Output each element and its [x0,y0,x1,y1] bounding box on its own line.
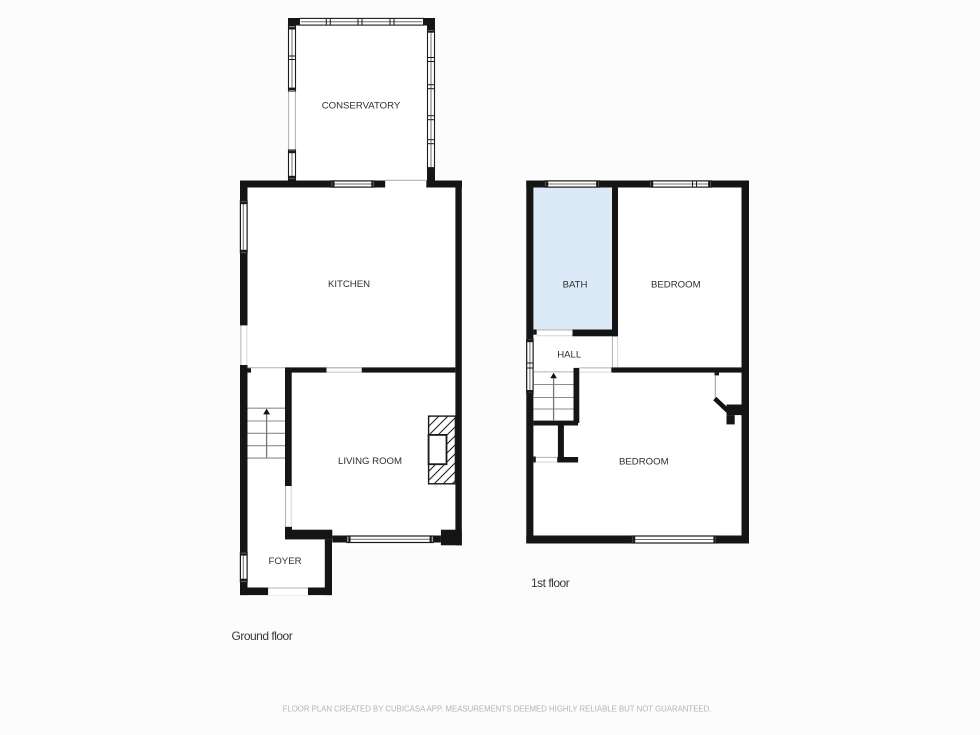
svg-text:BEDROOM: BEDROOM [651,280,701,291]
svg-text:BEDROOM: BEDROOM [619,457,669,468]
svg-text:BATH: BATH [563,280,588,291]
svg-text:LIVING ROOM: LIVING ROOM [338,456,402,467]
svg-text:KITCHEN: KITCHEN [328,279,370,290]
svg-text:HALL: HALL [557,350,582,361]
svg-text:Ground floor: Ground floor [232,629,293,643]
svg-text:1st floor: 1st floor [531,576,570,590]
svg-text:FLOOR PLAN CREATED BY CUBICASA: FLOOR PLAN CREATED BY CUBICASA APP. MEAS… [283,704,712,713]
svg-text:FOYER: FOYER [268,556,301,567]
svg-text:CONSERVATORY: CONSERVATORY [322,101,401,112]
